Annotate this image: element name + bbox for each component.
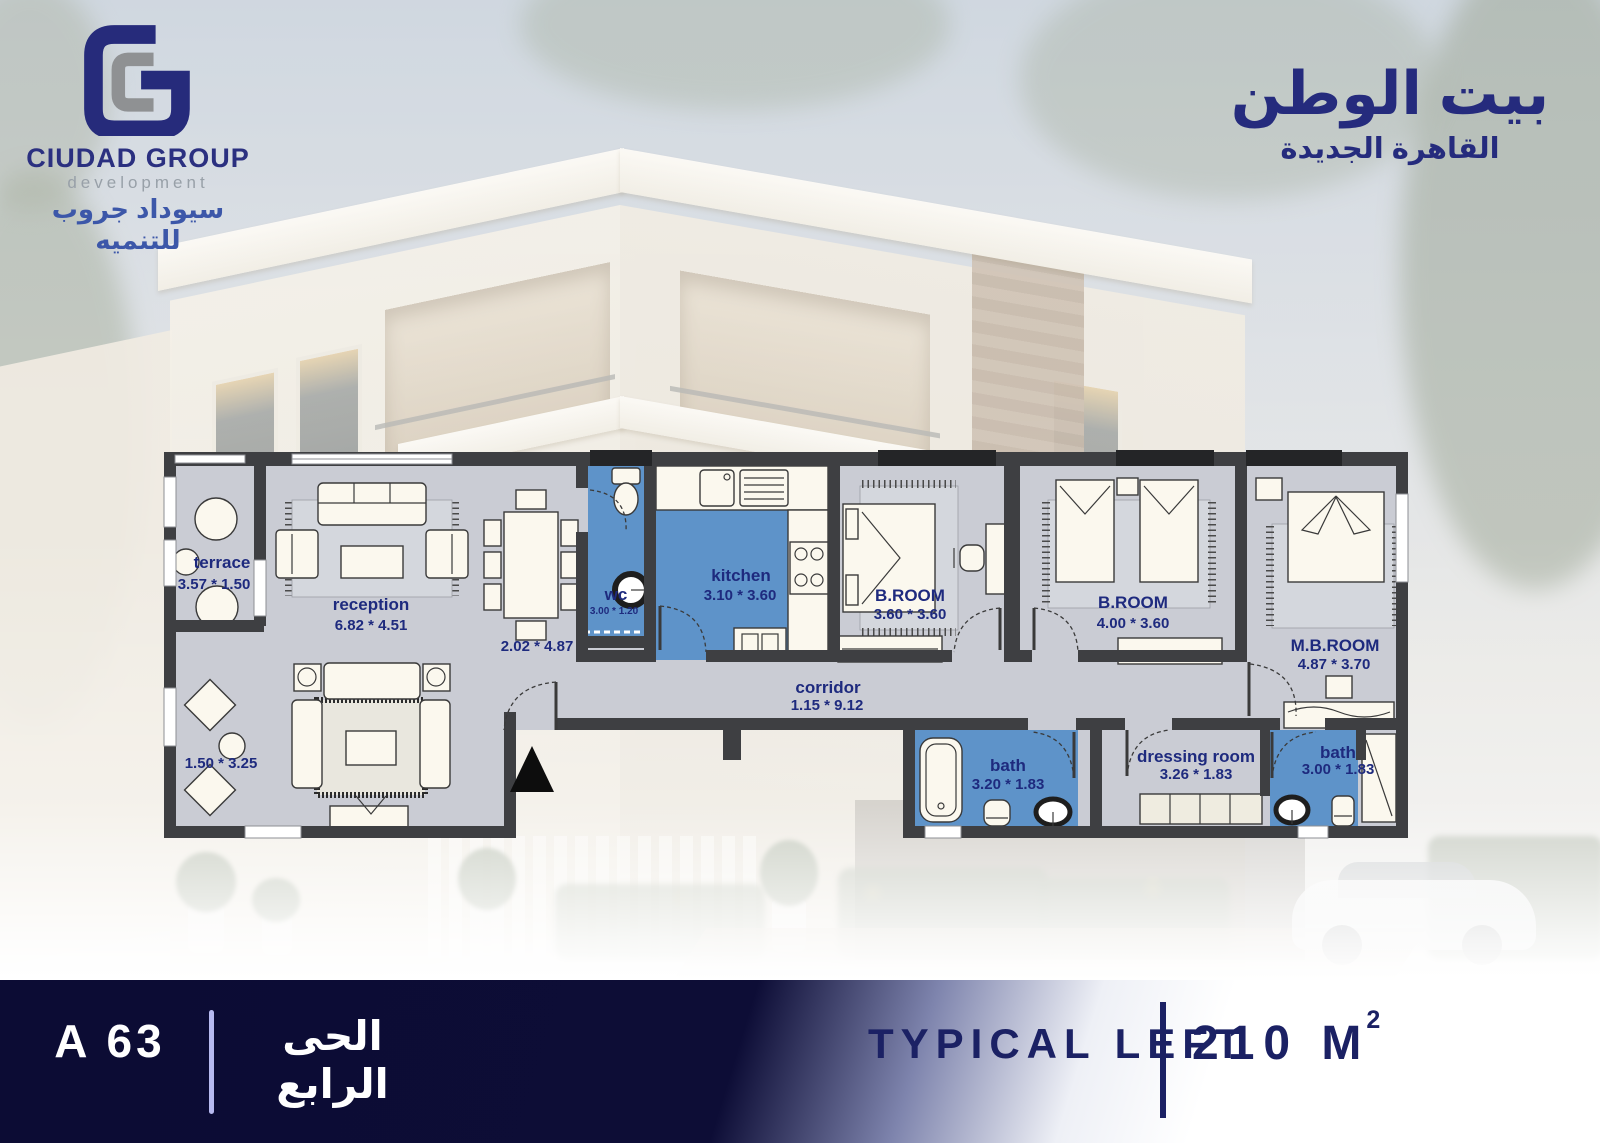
project-location-arabic: القاهرة الجديدة bbox=[1230, 131, 1550, 166]
company-logo: CIUDAD GROUP development سيوداد جروب للت… bbox=[18, 20, 258, 256]
dims-bedroom2: 4.00 * 3.60 bbox=[1097, 615, 1170, 632]
dims-dining: 2.02 * 4.87 bbox=[501, 638, 574, 655]
footer-divider-left bbox=[209, 1010, 214, 1114]
dims-bath1: 3.20 * 1.83 bbox=[972, 776, 1045, 793]
label-wc: wc bbox=[604, 585, 628, 604]
ciudad-group-monogram-icon bbox=[79, 20, 197, 136]
footer-bar: A 63 الحى الرابع TYPICAL LEFT 210 M2 bbox=[0, 980, 1600, 1143]
label-terrace: terrace bbox=[194, 553, 251, 572]
dims-terrace: 3.57 * 1.50 bbox=[178, 576, 251, 593]
dims-corridor: 1.15 * 9.12 bbox=[791, 697, 864, 714]
dims-reception: 6.82 * 4.51 bbox=[335, 617, 408, 634]
entrance-arrow-icon bbox=[510, 746, 554, 792]
label-dressing: dressing room bbox=[1137, 747, 1255, 766]
label-master-bedroom: M.B.ROOM bbox=[1291, 636, 1380, 655]
project-title-block: بيت الوطن القاهرة الجديدة bbox=[1230, 62, 1550, 166]
company-name: CIUDAD GROUP bbox=[18, 143, 258, 174]
dims-dressing: 3.26 * 1.83 bbox=[1160, 766, 1233, 783]
company-name-arabic: سيوداد جروب للتنميه bbox=[18, 194, 258, 256]
dims-sitting: 1.50 * 3.25 bbox=[185, 755, 258, 772]
dims-bath2: 3.00 * 1.83 bbox=[1302, 761, 1375, 778]
area-value: 210 M bbox=[1192, 1017, 1370, 1070]
dims-kitchen: 3.10 * 3.60 bbox=[704, 587, 777, 604]
layout-name: TYPICAL LEFT bbox=[868, 1020, 1248, 1068]
project-name-arabic: بيت الوطن bbox=[1230, 62, 1550, 125]
area-exponent: 2 bbox=[1366, 1006, 1380, 1034]
label-bath2: bath bbox=[1320, 743, 1356, 762]
footer-divider-right bbox=[1160, 1002, 1166, 1118]
unit-area: 210 M2 bbox=[1192, 1016, 1384, 1071]
label-kitchen: kitchen bbox=[711, 566, 771, 585]
label-bedroom2: B.ROOM bbox=[1098, 593, 1168, 612]
reception-sofa-set bbox=[276, 483, 468, 597]
district-arabic: الحى الرابع bbox=[240, 1012, 425, 1108]
label-reception: reception bbox=[333, 595, 410, 614]
label-bedroom1: B.ROOM bbox=[875, 586, 945, 605]
label-corridor: corridor bbox=[795, 678, 861, 697]
unit-code: A 63 bbox=[40, 1014, 180, 1068]
label-bath1: bath bbox=[990, 756, 1026, 775]
dims-wc: 3.00 * 1.20 bbox=[590, 606, 639, 617]
flyer-page: CIUDAD GROUP development سيوداد جروب للت… bbox=[0, 0, 1600, 1143]
dims-master-bedroom: 4.87 * 3.70 bbox=[1298, 656, 1371, 673]
dims-bedroom1: 3.60 * 3.60 bbox=[874, 606, 947, 623]
company-subtitle: development bbox=[18, 173, 258, 193]
